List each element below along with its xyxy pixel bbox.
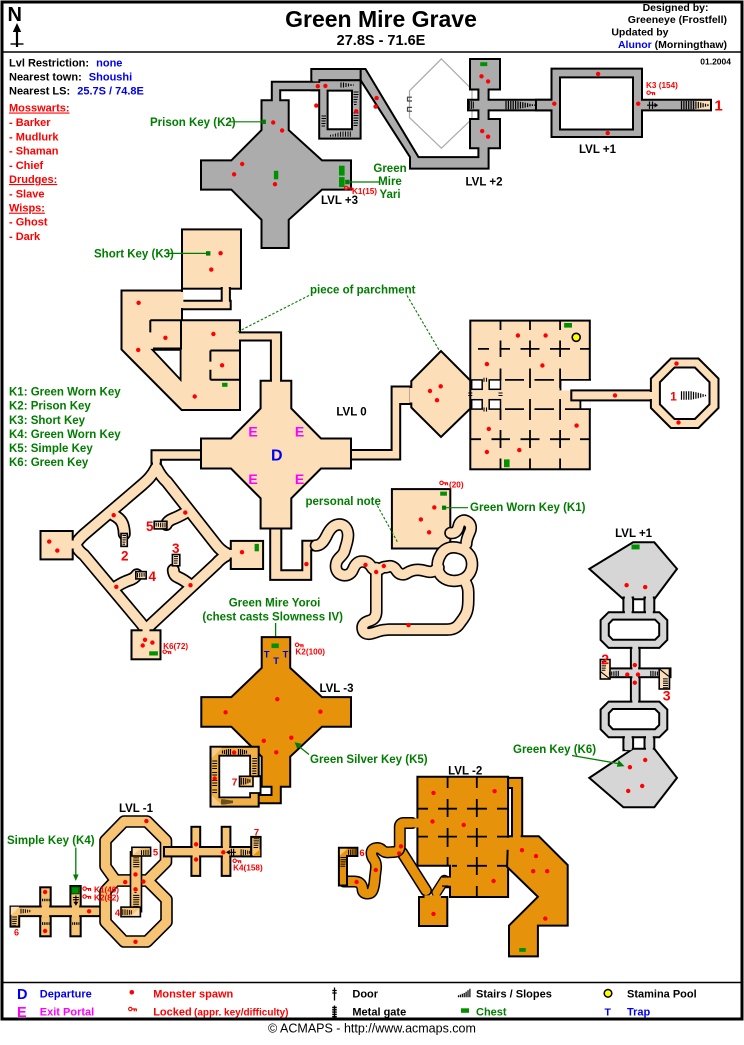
svg-text:Nearest town: Shoushi: Nearest town: Shoushi [9, 72, 132, 84]
svg-text:Green Silver Key (K5): Green Silver Key (K5) [310, 754, 428, 766]
svg-text:Stamina Pool: Stamina Pool [627, 989, 697, 1001]
svg-text:LVL +1: LVL +1 [615, 528, 653, 540]
svg-text:Green: Green [373, 163, 406, 175]
svg-text:Chest: Chest [476, 1007, 507, 1019]
svg-text:4: 4 [149, 569, 157, 584]
svg-text:K1: Green Worn Key: K1: Green Worn Key [9, 387, 121, 399]
svg-text:K4: Green Worn Key: K4: Green Worn Key [9, 429, 121, 441]
svg-text:5: 5 [153, 848, 159, 859]
svg-text:6: 6 [359, 848, 364, 859]
svg-text:2: 2 [121, 549, 129, 564]
svg-text:Lvl Restriction: none: Lvl Restriction: none [9, 57, 122, 69]
svg-text:Departure: Departure [40, 989, 92, 1001]
svg-text:Locked: Locked [153, 1007, 192, 1019]
svg-text:LVL -1: LVL -1 [119, 803, 154, 815]
svg-text:E: E [248, 424, 257, 440]
svg-text:T: T [605, 1007, 612, 1019]
svg-text:Metal gate: Metal gate [352, 1007, 406, 1019]
svg-text:Alunor (Morningthaw): Alunor (Morningthaw) [618, 39, 727, 51]
svg-text:K4(158): K4(158) [233, 863, 263, 872]
svg-text:T: T [273, 656, 279, 667]
svg-text:© ACMAPS - http://www.acmaps.c: © ACMAPS - http://www.acmaps.com [268, 1022, 476, 1036]
svg-text:K6(72): K6(72) [163, 642, 188, 651]
svg-text:piece of parchment: piece of parchment [310, 284, 416, 296]
svg-text:K2(82): K2(82) [94, 894, 119, 903]
svg-text:K6: Green Key: K6: Green Key [9, 457, 89, 469]
svg-text:Simple Key (K4): Simple Key (K4) [7, 835, 95, 847]
svg-text:Stairs / Slopes: Stairs / Slopes [476, 989, 552, 1001]
svg-text:Prison Key (K2): Prison Key (K2) [150, 117, 236, 129]
svg-text:Green Key (K6): Green Key (K6) [513, 744, 596, 756]
svg-text:D: D [17, 987, 27, 1003]
svg-text:- Shaman: - Shaman [9, 146, 59, 158]
svg-text:- Barker: - Barker [9, 117, 51, 129]
svg-text:01.2004: 01.2004 [700, 57, 731, 67]
svg-text:Yari: Yari [379, 189, 400, 201]
svg-text:- Mudlurk: - Mudlurk [9, 132, 59, 144]
svg-text:Trap: Trap [627, 1007, 651, 1019]
svg-text:(appr. key/difficulty): (appr. key/difficulty) [194, 1007, 288, 1018]
svg-text:E: E [248, 471, 257, 487]
svg-text:3: 3 [172, 541, 180, 556]
svg-text:E: E [17, 1005, 27, 1021]
svg-text:Green Worn Key (K1): Green Worn Key (K1) [470, 502, 586, 514]
svg-text:Drudges:: Drudges: [9, 174, 57, 186]
svg-text:T: T [264, 650, 270, 661]
svg-text:K2: Prison Key: K2: Prison Key [9, 401, 91, 413]
svg-text:- Slave: - Slave [9, 189, 44, 201]
svg-text:D: D [271, 448, 283, 465]
svg-text:Greeneye (Frostfell): Greeneye (Frostfell) [628, 14, 727, 26]
svg-text:K3: Short Key: K3: Short Key [9, 415, 86, 427]
svg-text:4: 4 [115, 908, 121, 919]
svg-text:Door: Door [352, 989, 378, 1001]
svg-text:2: 2 [601, 651, 609, 667]
svg-text:LVL +2: LVL +2 [466, 177, 503, 189]
svg-text:3: 3 [663, 688, 671, 704]
svg-text:LVL -3: LVL -3 [319, 683, 353, 695]
svg-text:- Chief: - Chief [9, 160, 44, 172]
svg-text:Nearest LS: 25.7S / 74.8E: Nearest LS: 25.7S / 74.8E [9, 86, 144, 98]
svg-text:6: 6 [14, 927, 19, 937]
svg-text:Exit Portal: Exit Portal [40, 1007, 94, 1019]
svg-text:7: 7 [232, 778, 238, 789]
svg-text:Green Mire Yoroi: Green Mire Yoroi [229, 597, 321, 609]
svg-text:- Ghost: - Ghost [9, 216, 48, 228]
svg-text:27.8S - 71.6E: 27.8S - 71.6E [337, 33, 426, 49]
svg-text:K5: Simple Key: K5: Simple Key [9, 443, 93, 455]
svg-text:Green Mire Grave: Green Mire Grave [285, 6, 477, 32]
svg-text:(20): (20) [449, 481, 464, 490]
svg-text:K1(15): K1(15) [352, 187, 377, 196]
svg-text:K3 (154): K3 (154) [646, 81, 678, 90]
svg-text:1: 1 [670, 389, 677, 403]
svg-text:LVL 0: LVL 0 [336, 406, 366, 418]
svg-text:N: N [8, 4, 22, 26]
svg-text:LVL -2: LVL -2 [448, 766, 482, 778]
svg-text:Monster spawn: Monster spawn [153, 989, 233, 1001]
svg-text:K2(100): K2(100) [295, 648, 325, 657]
svg-text:Updated by: Updated by [611, 27, 668, 39]
svg-text:personal note: personal note [306, 496, 381, 508]
svg-text:Designed by:: Designed by: [643, 2, 709, 14]
svg-text:1: 1 [714, 98, 722, 115]
svg-text:E: E [295, 424, 304, 440]
svg-text:E: E [295, 471, 304, 487]
svg-text:- Dark: - Dark [9, 231, 41, 243]
svg-text:Mire: Mire [378, 176, 402, 188]
svg-text:T: T [283, 650, 289, 661]
svg-text:LVL +1: LVL +1 [579, 144, 617, 156]
svg-text:Wisps:: Wisps: [9, 203, 45, 215]
svg-text:(chest casts Slowness IV): (chest casts Slowness IV) [202, 611, 343, 623]
svg-text:7: 7 [254, 827, 259, 838]
svg-text:5: 5 [146, 519, 154, 534]
svg-text:LVL +3: LVL +3 [321, 195, 358, 207]
svg-text:Mosswarts:: Mosswarts: [9, 103, 70, 115]
svg-text:Short Key (K3): Short Key (K3) [94, 249, 174, 261]
